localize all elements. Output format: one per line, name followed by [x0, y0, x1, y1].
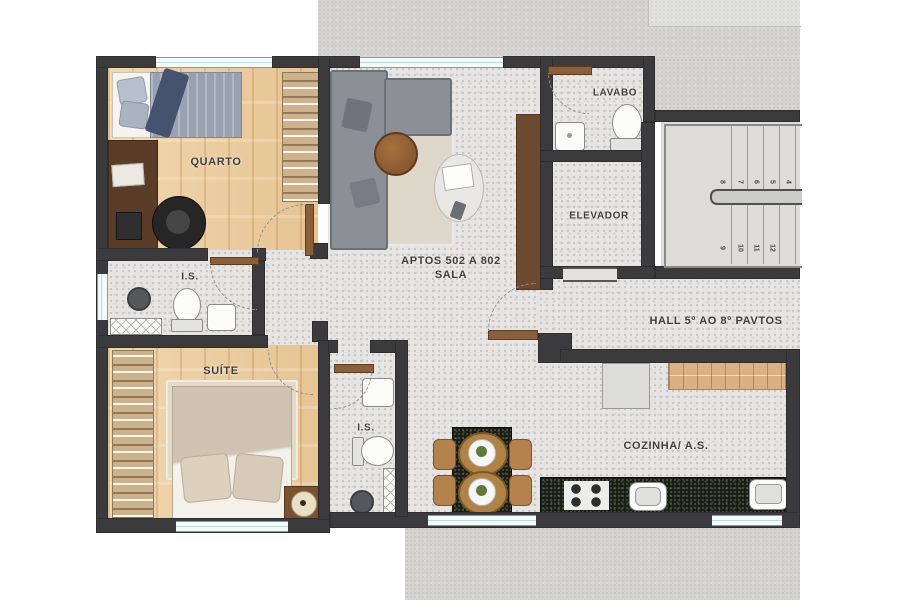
window-cozinha-bottom: [712, 515, 782, 526]
dining-chair: [433, 439, 456, 470]
tv-panel: [516, 114, 542, 290]
wall-lavabo-right: [643, 56, 655, 122]
step-number: 12: [769, 244, 776, 252]
step-number: 4: [785, 180, 792, 184]
wall-elevador-right: [641, 122, 655, 278]
wall-top-b: [272, 56, 360, 68]
laundry-tank-basin: [755, 484, 782, 504]
elevator-door: [563, 267, 617, 282]
sofa-top-section: [384, 78, 452, 136]
shower-head-icon: [350, 490, 374, 514]
window-suite-bottom: [176, 521, 288, 532]
label-is-suite: I.S.: [357, 423, 374, 434]
wall-cozinha-right: [786, 349, 800, 527]
label-sala-line2: SALA: [435, 269, 467, 281]
door-leaf-quarto: [305, 204, 314, 256]
wall-quarto-right: [318, 56, 330, 204]
window-is-left: [97, 274, 108, 320]
label-elevador: ELEVADOR: [569, 211, 629, 222]
dining-chair: [509, 475, 532, 506]
wall-quarto-bottom: [96, 248, 208, 261]
label-sala-line1: APTOS 502 A 802: [401, 255, 501, 267]
wall-is-suite-top-a: [328, 340, 338, 353]
wardrobe-quarto: [282, 72, 322, 202]
shower-screen-is: [110, 318, 162, 335]
label-quarto: QUARTO: [190, 156, 241, 168]
pillow: [232, 453, 285, 504]
step-number: 9: [719, 246, 726, 250]
wall-sala-right: [540, 56, 553, 290]
desk-monitor: [116, 212, 142, 240]
food-garnish: [476, 446, 487, 457]
label-hall: HALL 5º AO 8º PAVTOS: [649, 315, 782, 327]
window-sala-top: [360, 57, 503, 68]
label-suite: SUÍTE: [203, 365, 238, 377]
office-chair-seat: [166, 210, 190, 234]
pillow: [180, 453, 233, 504]
toilet-bowl-is: [173, 288, 201, 323]
window-quarto-top: [156, 57, 272, 68]
door-leaf-entry: [488, 330, 538, 340]
step-number: 5: [769, 180, 776, 184]
step-number: 7: [737, 180, 744, 184]
wall-suite-right: [318, 340, 330, 520]
desk-papers: [111, 163, 144, 187]
laptop: [441, 163, 474, 191]
wall-stub-suite-door: [312, 321, 328, 342]
step-number: 6: [753, 180, 760, 184]
wall-cozinha-top: [560, 349, 800, 363]
coffee-table: [374, 132, 418, 176]
dish-rack-counter: [668, 361, 786, 390]
concrete-slab-step: [648, 0, 801, 27]
food-garnish: [476, 485, 487, 496]
window-as-bottom: [428, 515, 536, 526]
wall-top-a: [96, 56, 156, 68]
concrete-slab-right: [648, 58, 800, 112]
label-cozinha: COZINHA/ A.S.: [623, 440, 708, 452]
sink-drain: [567, 133, 572, 138]
wall-suite-top: [96, 335, 268, 348]
toilet-bowl-is-suite: [361, 436, 394, 466]
toilet-tank-is: [171, 319, 203, 332]
kitchen-sink-basin: [635, 487, 661, 506]
toilet-bowl-lavabo: [612, 104, 642, 142]
fridge: [602, 362, 650, 409]
wardrobe-suite: [112, 350, 154, 518]
step-number: 8: [719, 180, 726, 184]
floor-plan: 8 7 6 5 4 9 10 11 12 QUARTO LAVABO ELEVA…: [0, 0, 900, 600]
concrete-slab-bottom: [405, 527, 800, 600]
stair-treads-lower: [716, 201, 800, 264]
wall-lavabo-bottom: [540, 150, 655, 162]
step-number: 11: [753, 244, 760, 251]
label-is-social: I.S.: [181, 272, 198, 283]
stair-handrail: [710, 189, 802, 205]
bedside-speaker-dot: [300, 500, 306, 506]
sink-is: [207, 304, 236, 331]
dining-chair: [509, 439, 532, 470]
stove-cooktop: [564, 481, 609, 510]
label-lavabo: LAVABO: [593, 88, 637, 99]
step-number: 10: [737, 244, 744, 252]
wall-stair-top: [655, 110, 800, 122]
wall-is-suite-right: [395, 340, 408, 517]
dining-chair: [433, 475, 456, 506]
shower-head-icon: [127, 287, 151, 311]
